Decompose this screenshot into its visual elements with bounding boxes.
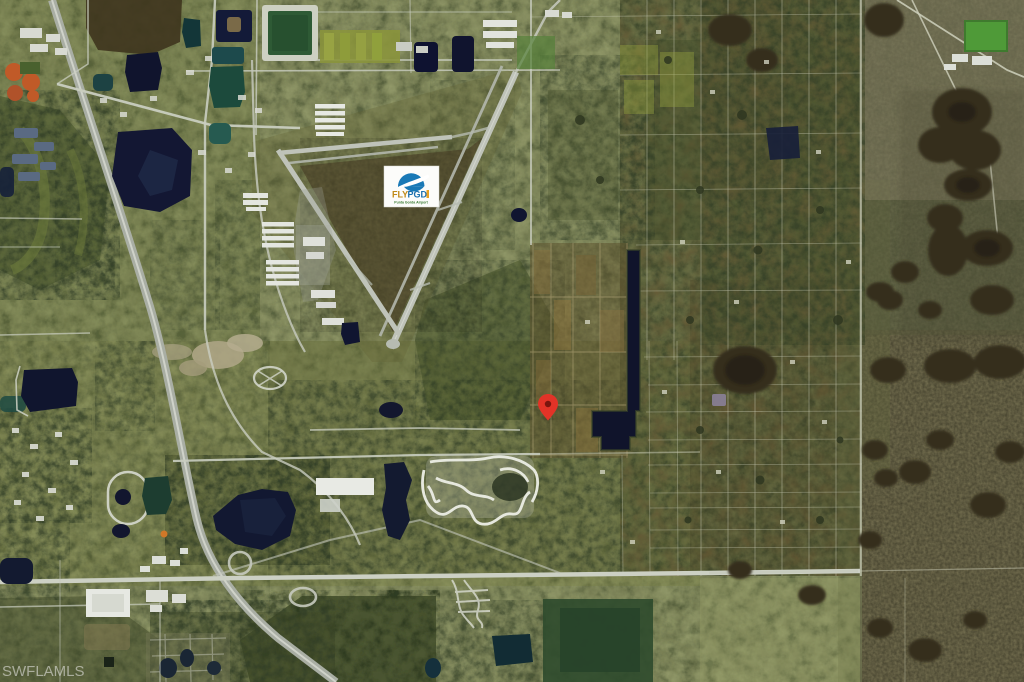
svg-text:PGD: PGD bbox=[408, 190, 428, 200]
svg-text:Punta Gorda Airport: Punta Gorda Airport bbox=[394, 201, 428, 205]
svg-text:FLY: FLY bbox=[392, 190, 408, 200]
svg-text:SWFLAMLS: SWFLAMLS bbox=[2, 663, 85, 680]
